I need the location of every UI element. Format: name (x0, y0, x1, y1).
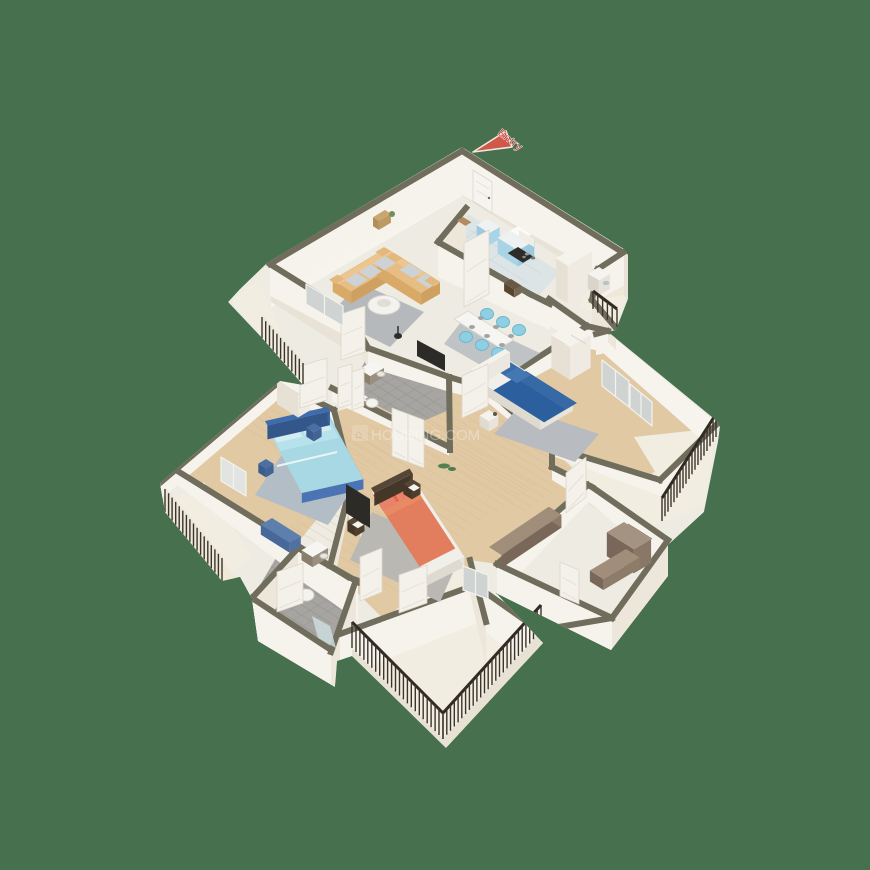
svg-text:HOUSING.COM: HOUSING.COM (371, 427, 480, 444)
svg-text:⌂: ⌂ (355, 427, 362, 441)
